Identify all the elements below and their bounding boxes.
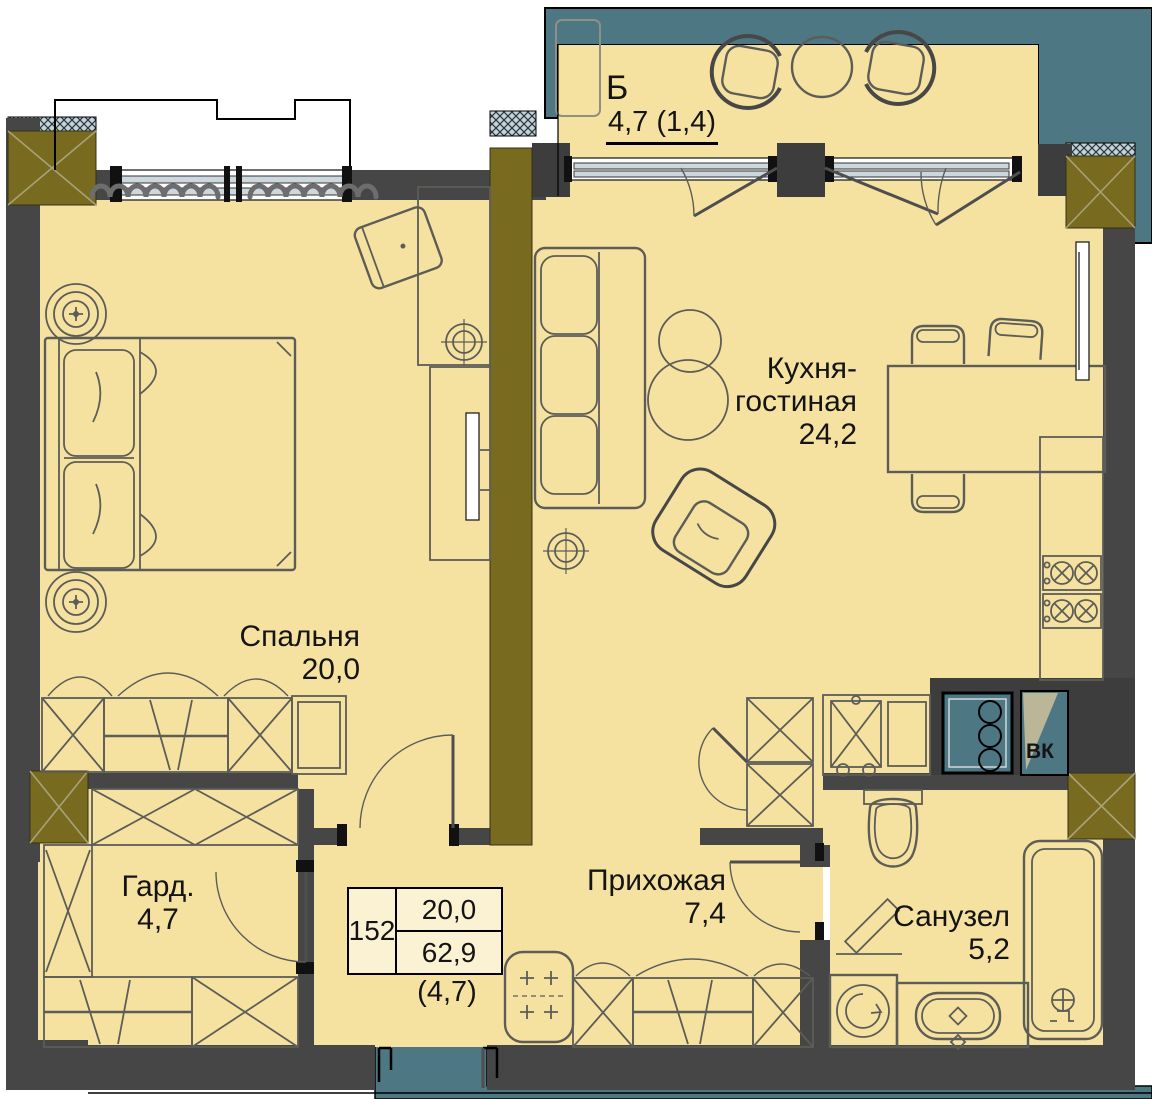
bedroom-area: 20,0: [198, 653, 360, 686]
shaft-label: ВК: [1026, 735, 1054, 768]
kitchen-living-name-line2: гостиная: [695, 385, 857, 418]
hallway-area: 7,4: [576, 897, 726, 930]
pylon-bathroom: [1068, 773, 1135, 839]
kitchen-living-label: Кухня- гостиная 24,2: [695, 352, 857, 451]
balcony-area: 4,7 (1,4): [606, 106, 718, 145]
wall-tv: [1076, 242, 1089, 380]
bathroom-area: 5,2: [860, 933, 1010, 966]
wardrobe-name: Гард.: [106, 870, 210, 903]
balcony-label: Б 4,7 (1,4): [606, 72, 718, 145]
kitchen-living-name-line1: Кухня-: [695, 352, 857, 385]
shaft-appliance: [943, 693, 1012, 773]
pylon-top-right: [1066, 156, 1135, 228]
apartment-stamp: 152 20,0 62,9: [347, 887, 503, 975]
stamp-summer-area: (4,7): [392, 976, 502, 1009]
wardrobe-area: 4,7: [106, 903, 210, 936]
stamp-total-area: 62,9: [397, 932, 501, 973]
pylon-bottom-left: [30, 771, 88, 843]
stamp-living-area: 20,0: [397, 889, 501, 932]
floor-plan: Б 4,7 (1,4) Кухня- гостиная 24,2 Спальня…: [0, 0, 1152, 1099]
bedroom-name: Спальня: [198, 620, 360, 653]
kitchen-living-area: 24,2: [695, 418, 857, 451]
room-bedroom: [40, 200, 490, 845]
bathroom-label: Санузел 5,2: [860, 900, 1010, 966]
hallway-label: Прихожая 7,4: [576, 864, 726, 930]
pylon-top-left: [8, 131, 96, 205]
apartment-number: 152: [349, 889, 397, 973]
balcony-door-pier: [777, 143, 825, 197]
bathroom-name: Санузел: [860, 900, 1010, 933]
wardrobe-label: Гард. 4,7: [106, 870, 210, 936]
bedroom-label: Спальня 20,0: [198, 620, 360, 686]
hallway-name: Прихожая: [576, 864, 726, 897]
partition-pylon: [490, 148, 532, 845]
balcony-name: Б: [606, 72, 718, 105]
